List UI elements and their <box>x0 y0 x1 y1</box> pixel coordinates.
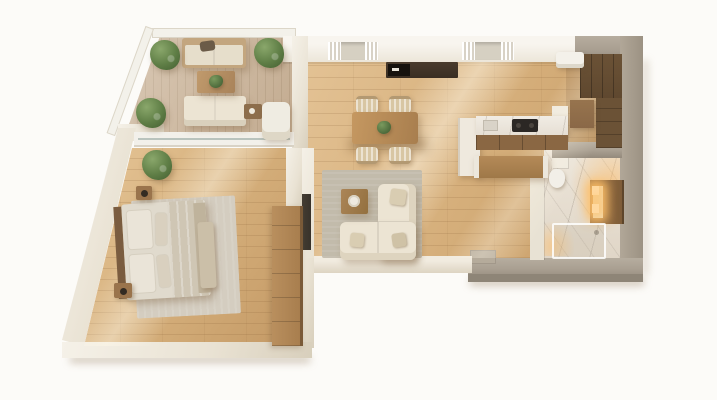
potted-plant <box>254 38 284 68</box>
kitchen-sink <box>483 120 498 131</box>
fireplace-unit <box>388 64 410 76</box>
outdoor-sofa <box>182 38 246 68</box>
ac-unit <box>556 52 584 68</box>
bedroom-right-wall-stub <box>286 148 302 210</box>
vanity-light-strip <box>592 204 599 213</box>
pillow <box>126 209 154 251</box>
cooktop <box>512 119 538 132</box>
shower-glass-enclosure <box>552 223 606 259</box>
wall-tv <box>302 194 311 250</box>
bottom-right-wall-edge <box>468 274 643 282</box>
potted-plant <box>136 98 166 128</box>
terrace-living-divider-wall <box>292 36 308 150</box>
toilet <box>549 169 565 188</box>
potted-plant <box>142 150 172 180</box>
pillow <box>155 212 168 246</box>
living-coffee-table <box>341 189 368 214</box>
table-plant <box>209 75 223 88</box>
potted-plant <box>150 40 180 70</box>
pillow <box>128 253 156 295</box>
bed-bench <box>197 222 216 289</box>
closet-dresser <box>570 100 594 128</box>
right-wall <box>620 36 643 282</box>
terrace-railing-top <box>152 28 296 38</box>
dining-chair <box>389 96 411 113</box>
floor-plan-render <box>0 0 717 400</box>
outdoor-sofa <box>184 96 246 126</box>
outdoor-side-table <box>244 104 262 119</box>
dining-chair <box>356 96 378 113</box>
lounge-chair <box>262 102 290 140</box>
dining-chair <box>356 147 378 164</box>
throw-blanket <box>199 40 215 52</box>
closet-wardrobe-top <box>580 54 622 98</box>
kitchen-cabinet-fronts <box>476 135 568 150</box>
vanity-light-strip <box>592 186 599 195</box>
entry-step <box>470 250 496 264</box>
kitchen-island <box>474 156 548 178</box>
window-with-curtains <box>328 42 378 60</box>
bedroom-wardrobe <box>272 206 303 346</box>
nightstand-with-lamp <box>114 283 132 298</box>
nightstand-with-lamp <box>136 186 152 200</box>
closet-wardrobe-side <box>596 98 622 148</box>
window-with-curtains <box>462 42 514 60</box>
throw-cushion <box>349 232 364 247</box>
throw-cushion <box>389 188 407 206</box>
throw-cushion <box>391 232 407 248</box>
outdoor-coffee-table <box>197 71 235 93</box>
dining-chair <box>389 147 411 164</box>
